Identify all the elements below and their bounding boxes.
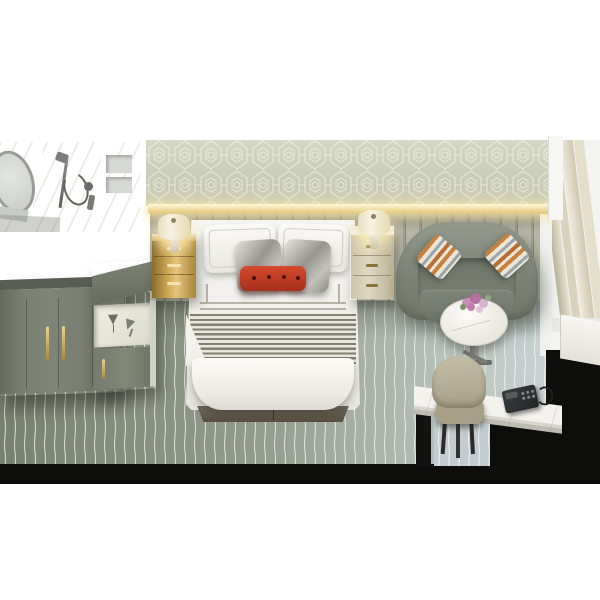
duvet-stitch-line [338, 284, 340, 304]
telephone-key [527, 396, 530, 399]
chair-back [432, 356, 486, 408]
duvet-stitch-line [200, 302, 346, 304]
telephone-key [531, 390, 534, 393]
minibar-top-slab [92, 260, 156, 305]
desk-side-gable [560, 314, 600, 365]
king-bed [186, 218, 360, 424]
drawer-pull [167, 282, 181, 285]
niche-shelf [106, 177, 132, 193]
drawer-seam [154, 256, 194, 257]
table-lamp-right [356, 208, 394, 248]
telephone-key [532, 395, 535, 398]
shower-floor [0, 214, 60, 232]
desk-leg [416, 412, 431, 466]
flower-leaf [485, 295, 491, 301]
drawer-pull [366, 284, 378, 287]
lamp-finial [171, 218, 176, 223]
striped-throw-blanket [190, 314, 356, 364]
wardrobe-side-panel [0, 289, 26, 394]
floor-cut-band [0, 464, 600, 484]
tuft-button [267, 275, 271, 279]
wall-end-cap [548, 136, 563, 220]
brass-door-handle [102, 359, 105, 379]
brass-door-handle [62, 326, 65, 360]
brass-door-handle [46, 326, 49, 360]
minibar-cabinet [92, 260, 156, 391]
flower-arrangement [458, 290, 494, 318]
minibar-door [94, 347, 152, 390]
lamp-base [170, 239, 179, 253]
niche-shelf [106, 155, 132, 173]
glassware-niche [94, 303, 150, 348]
lamp-finial [371, 214, 376, 219]
tuft-button [296, 276, 300, 280]
telephone-screen [505, 391, 518, 399]
drawer-seam [353, 275, 391, 276]
flower-leaf [460, 304, 466, 310]
telephone-key [526, 391, 529, 394]
wallpaper-panel [146, 140, 556, 206]
table-lamp-left [156, 212, 194, 252]
flower [476, 306, 483, 313]
red-lumbar-pillow [240, 266, 306, 291]
tuft-button [252, 276, 256, 280]
drawer-seam [154, 274, 194, 275]
lamp-shade [358, 210, 390, 236]
chair-leg [456, 424, 460, 458]
shower-valve [84, 182, 93, 191]
duvet-stitch-line [206, 284, 208, 304]
door-seam [58, 298, 59, 388]
wine-glass [123, 318, 136, 331]
drawer-pull [366, 264, 378, 267]
minibar-side-light [150, 300, 156, 386]
drawer-pull [167, 264, 181, 267]
door-seam [26, 299, 27, 389]
lamp-shade [158, 214, 190, 240]
led-cove-light [148, 204, 552, 213]
desk-chair [430, 354, 490, 460]
telephone-key [521, 392, 524, 395]
wine-glass-stem [113, 325, 115, 333]
wine-glass [108, 314, 118, 325]
drawer-seam [353, 255, 391, 256]
tuft-button [282, 275, 286, 279]
duvet-foot-fold [192, 358, 354, 410]
hotel-room-isometric-render [0, 0, 600, 600]
bathroom-vignette [0, 142, 140, 232]
telephone-cord [536, 386, 554, 406]
lamp-base [370, 235, 379, 249]
duvet-stitch-line [200, 308, 346, 310]
flower [467, 303, 475, 311]
telephone-key [522, 397, 525, 400]
marble-vein [452, 320, 491, 331]
